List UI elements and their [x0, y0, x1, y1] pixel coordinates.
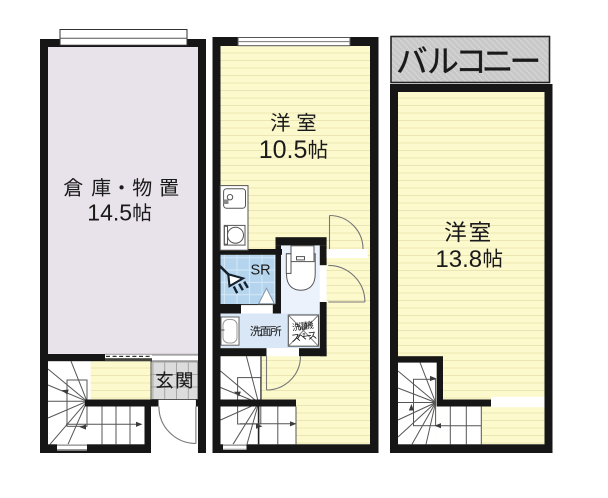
svg-text:13.8: 13.8: [435, 246, 482, 273]
svg-text:SR: SR: [251, 263, 271, 279]
svg-text:14.5: 14.5: [87, 200, 132, 226]
svg-text:10.5: 10.5: [259, 136, 308, 164]
